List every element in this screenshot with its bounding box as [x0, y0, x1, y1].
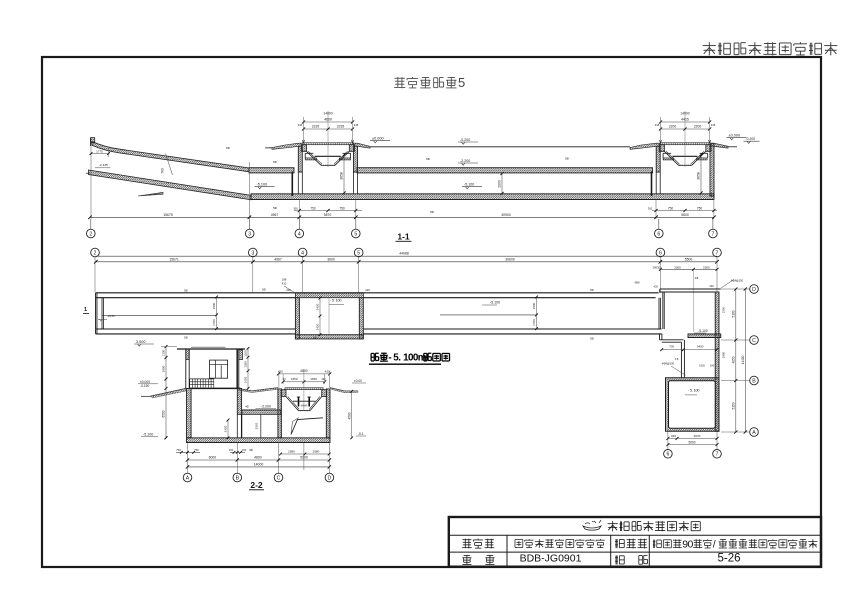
- svg-text:1500: 1500: [212, 302, 216, 309]
- svg-text:C: C: [277, 475, 281, 481]
- svg-text:-0.200: -0.200: [460, 138, 470, 142]
- svg-text:3: 3: [248, 231, 251, 237]
- svg-text:2070: 2070: [694, 434, 701, 438]
- svg-text:3658: 3658: [697, 172, 701, 180]
- svg-text:A: A: [752, 430, 756, 436]
- svg-text:750: 750: [697, 206, 703, 210]
- svg-text:30900: 30900: [501, 213, 511, 217]
- svg-text:1700: 1700: [212, 319, 216, 326]
- svg-text:30600: 30600: [505, 258, 515, 262]
- svg-text:3600: 3600: [327, 258, 335, 262]
- svg-text:-5.100: -5.100: [257, 183, 268, 187]
- svg-text:BDB-JG0901: BDB-JG0901: [520, 553, 582, 565]
- svg-text:4500: 4500: [347, 412, 351, 419]
- svg-text:.: .: [692, 389, 693, 393]
- svg-text:4600: 4600: [324, 117, 332, 121]
- svg-text:750: 750: [176, 448, 181, 452]
- svg-text:0: 0: [339, 299, 341, 303]
- svg-text:2300: 2300: [722, 306, 726, 313]
- svg-text:2500: 2500: [703, 265, 710, 269]
- svg-text:2800: 2800: [162, 365, 166, 372]
- svg-text:D: D: [752, 287, 756, 293]
- svg-text:750: 750: [339, 206, 345, 210]
- svg-text:2200: 2200: [694, 124, 702, 128]
- svg-text:14000: 14000: [680, 112, 689, 116]
- svg-text:410: 410: [282, 282, 287, 286]
- svg-text:6500: 6500: [162, 410, 166, 417]
- svg-text:2420: 2420: [224, 425, 228, 432]
- svg-text:2581: 2581: [255, 422, 259, 429]
- svg-text:B: B: [236, 475, 240, 481]
- svg-text:2235: 2235: [312, 124, 320, 128]
- svg-text:750: 750: [668, 206, 674, 210]
- svg-text:2-2: 2-2: [250, 480, 263, 490]
- svg-text:2: 2: [94, 250, 97, 256]
- svg-text:5100: 5100: [731, 310, 735, 317]
- svg-text:1920: 1920: [699, 364, 705, 368]
- svg-text:5Φ: 5Φ: [273, 206, 278, 210]
- svg-text:2900: 2900: [498, 180, 502, 188]
- svg-text:420: 420: [709, 284, 714, 288]
- svg-text:4415: 4415: [681, 117, 689, 121]
- svg-text:345: 345: [298, 123, 303, 127]
- svg-text:750: 750: [194, 448, 199, 452]
- svg-text:5Φ: 5Φ: [273, 160, 278, 164]
- svg-text:-2435: -2435: [107, 314, 115, 318]
- svg-text:5000: 5000: [300, 456, 308, 460]
- svg-text:5Φ: 5Φ: [430, 210, 435, 214]
- svg-text:-5.100: -5.100: [698, 329, 708, 333]
- svg-text:1: 1: [84, 307, 87, 313]
- svg-text:750: 750: [310, 206, 316, 210]
- svg-text:2580: 2580: [313, 449, 320, 453]
- svg-text:7: 7: [716, 452, 719, 458]
- svg-text:1650: 1650: [244, 376, 248, 383]
- svg-text:5Φ: 5Φ: [426, 157, 431, 161]
- svg-text:±0.000: ±0.000: [729, 134, 741, 138]
- svg-text:4967: 4967: [274, 258, 282, 262]
- svg-text:345: 345: [354, 123, 359, 127]
- svg-text:C: C: [752, 338, 756, 344]
- svg-text:3.900: 3.900: [136, 340, 146, 344]
- svg-text:14000: 14000: [323, 112, 332, 116]
- svg-text:5: 5: [354, 231, 357, 237]
- svg-text:1500: 1500: [532, 302, 536, 309]
- svg-text:5: 5: [458, 75, 465, 90]
- svg-text:5870: 5870: [324, 213, 332, 217]
- svg-text:2: 2: [89, 231, 92, 237]
- svg-text:2200: 2200: [669, 124, 677, 128]
- svg-text:3: 3: [251, 250, 254, 256]
- svg-text:5: 5: [357, 250, 360, 256]
- svg-text:1650: 1650: [291, 377, 298, 381]
- svg-text:±0.000: ±0.000: [140, 380, 150, 384]
- svg-text:420: 420: [365, 288, 370, 292]
- svg-text:-5.100: -5.100: [143, 432, 153, 436]
- svg-text:0: 0: [697, 389, 699, 393]
- svg-text:1100: 1100: [244, 350, 248, 357]
- svg-text:1650: 1650: [310, 377, 317, 381]
- svg-text:4Φ8@150: 4Φ8@150: [731, 279, 744, 283]
- svg-text:30630: 30630: [652, 265, 660, 269]
- svg-text:4Φ8@200: 4Φ8@200: [662, 362, 675, 366]
- svg-text:-5.100: -5.100: [490, 301, 500, 305]
- svg-text:345: 345: [711, 123, 716, 127]
- svg-text:780: 780: [161, 168, 165, 174]
- svg-text:420: 420: [286, 288, 291, 292]
- svg-text:B: B: [752, 378, 756, 384]
- svg-text:0: 0: [688, 538, 694, 550]
- svg-text:-5.100: -5.100: [464, 183, 474, 187]
- svg-text:1-1: 1-1: [397, 232, 410, 242]
- svg-text:1:8: 1:8: [675, 357, 679, 361]
- svg-text:5150: 5150: [731, 402, 735, 409]
- svg-text:345: 345: [655, 123, 660, 127]
- svg-text:6: 6: [666, 452, 669, 458]
- svg-text:4800: 4800: [254, 456, 262, 460]
- svg-text:5Φ: 5Φ: [226, 146, 231, 150]
- svg-text:3658: 3658: [340, 172, 344, 180]
- svg-text:4967: 4967: [271, 213, 279, 217]
- svg-text:1775: 1775: [96, 150, 103, 154]
- svg-text:±0.000: ±0.000: [372, 137, 384, 141]
- svg-text:.: .: [398, 353, 401, 364]
- svg-text:-: -: [388, 353, 391, 364]
- svg-text:3400: 3400: [697, 344, 704, 348]
- svg-text:300: 300: [293, 206, 298, 210]
- svg-text:930: 930: [671, 434, 676, 438]
- svg-text:5600: 5600: [681, 213, 689, 217]
- svg-text:-2.435: -2.435: [99, 163, 108, 167]
- svg-text:7: 7: [711, 231, 714, 237]
- svg-text:1100: 1100: [162, 349, 166, 356]
- svg-text:5Φ: 5Φ: [565, 156, 570, 160]
- svg-text:6000: 6000: [209, 456, 217, 460]
- svg-text:-2.200: -2.200: [261, 405, 271, 409]
- svg-text:190: 190: [710, 364, 715, 368]
- svg-text:1300: 1300: [244, 361, 248, 368]
- svg-text:-5.1: -5.1: [358, 432, 364, 436]
- svg-text:1980: 1980: [722, 351, 726, 358]
- svg-text:-0.200: -0.200: [746, 137, 756, 141]
- svg-text:2580: 2580: [288, 449, 295, 453]
- svg-text:14000: 14000: [254, 463, 264, 467]
- svg-text:/: /: [713, 538, 716, 550]
- svg-text:-2.200: -2.200: [460, 159, 470, 163]
- svg-text:6: 6: [657, 231, 660, 237]
- svg-text:1700: 1700: [532, 319, 536, 326]
- svg-text:±0.00: ±0.00: [354, 379, 362, 383]
- svg-text:2235: 2235: [337, 124, 345, 128]
- svg-text:15671: 15671: [169, 258, 179, 262]
- svg-text:D: D: [328, 475, 332, 481]
- svg-text:44088: 44088: [399, 252, 409, 256]
- svg-text:420: 420: [653, 285, 658, 289]
- svg-text:2420: 2420: [316, 323, 320, 330]
- svg-text:A: A: [186, 475, 190, 481]
- svg-text:15675: 15675: [163, 213, 173, 217]
- svg-text:7: 7: [716, 250, 719, 256]
- svg-text:700: 700: [669, 344, 674, 348]
- svg-text:5000: 5000: [688, 440, 695, 444]
- svg-text:150: 150: [242, 448, 247, 452]
- svg-text:4Φ: 4Φ: [249, 448, 254, 452]
- svg-text:4: 4: [298, 231, 301, 237]
- svg-text:3000: 3000: [674, 265, 681, 269]
- svg-text:300: 300: [648, 206, 653, 210]
- svg-text:5-26: 5-26: [717, 553, 740, 565]
- svg-text:150: 150: [229, 448, 234, 452]
- svg-text:5500: 5500: [685, 258, 693, 262]
- svg-text:6: 6: [659, 250, 662, 256]
- svg-text:4Φ8: 4Φ8: [634, 281, 640, 285]
- svg-text:2420: 2420: [316, 303, 320, 310]
- svg-text:4050: 4050: [731, 356, 735, 363]
- svg-text:4: 4: [301, 250, 304, 256]
- svg-text:14400: 14400: [741, 355, 745, 364]
- svg-text:-0.150: -0.150: [140, 384, 150, 388]
- svg-text:m: m: [418, 353, 427, 364]
- svg-text:.: .: [334, 299, 335, 303]
